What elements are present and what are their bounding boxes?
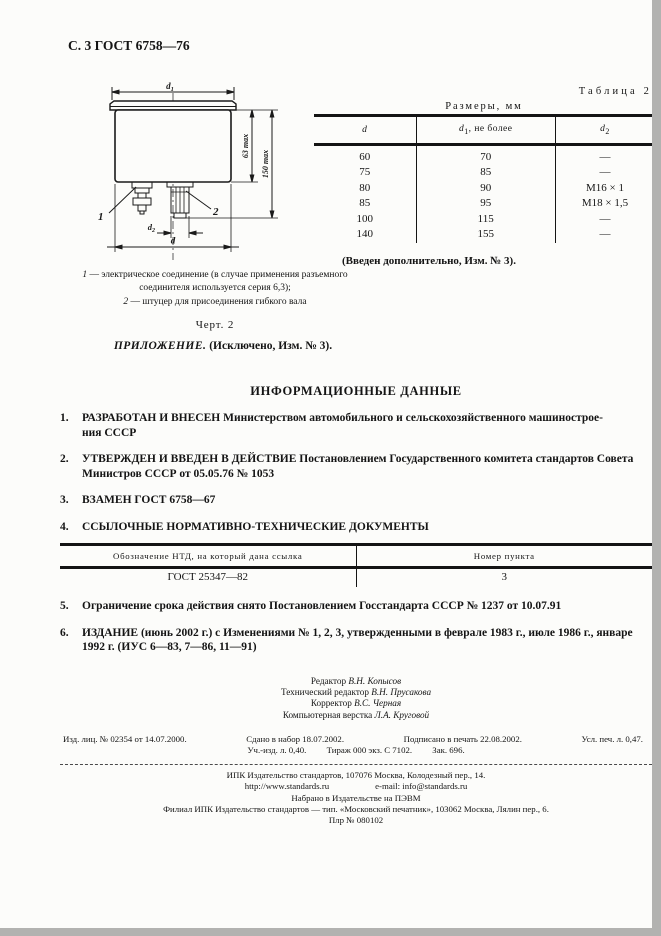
document-page: С. 3 ГОСТ 6758—76 [0, 0, 661, 936]
imprint-line-2: Уч.-изд. л. 0,40. Тираж 000 экз. С 7102.… [60, 745, 652, 755]
col-header-d2: d2 [555, 116, 654, 145]
info-item-6: 6. ИЗДАНИЕ (июнь 2002 г.) с Изменениями … [60, 626, 652, 655]
dim-label-d2: d2 [148, 222, 155, 234]
info-item-1: 1. РАЗРАБОТАН И ВНЕСЕН Министерством авт… [60, 411, 652, 440]
table-row: 100115— [314, 212, 654, 228]
table2-label: Таблица 2 [314, 86, 654, 97]
table-row: 8595М18 × 1,5 [314, 196, 654, 212]
table-row: ГОСТ 25347—82 3 [60, 568, 652, 588]
table2-block: Таблица 2 Размеры, мм d d1, не более d2 … [314, 86, 654, 267]
info-title: ИНФОРМАЦИОННЫЕ ДАННЫЕ [60, 384, 652, 399]
appendix-bold: (Исключено, Изм. № 3). [209, 340, 332, 352]
credit-line: Технический редактор В.Н. Прусакова [60, 687, 652, 698]
dim-label-150max: 150 max [261, 150, 270, 178]
publisher-email: e-mail: info@standards.ru [375, 781, 467, 791]
note2-number: 2 [123, 297, 128, 307]
appendix-italic: ПРИЛОЖЕНИЕ. [114, 340, 206, 352]
license-info: Изд. лиц. № 02354 от 14.07.2000. [63, 734, 187, 744]
credit-line: Редактор В.Н. Копысов [60, 676, 652, 687]
plr-number: Плр № 080102 [60, 815, 652, 826]
table2-note: (Введен дополнительно, Изм. № 3). [314, 255, 654, 267]
dim-label-d1: d1 [166, 81, 174, 93]
publisher-address: ИПК Издательство стандартов, 107076 Моск… [60, 770, 652, 781]
dashed-divider [60, 764, 652, 765]
info-item-2: 2. УТВЕРЖДЕН И ВВЕДЕН В ДЕЙСТВИЕ Постано… [60, 452, 652, 481]
print-sheets: Усл. печ. л. 0,47. [582, 734, 643, 744]
drawing-svg: d1 63 max 150 max d2 d 1 2 [85, 80, 325, 270]
table-row: 6070— [314, 144, 654, 165]
typeset-note: Набрано в Издательстве на ПЭВМ [60, 793, 652, 804]
figure-notes: 1 — электрическое соединение (в случае п… [58, 269, 372, 309]
imprint-line-1: Изд. лиц. № 02354 от 14.07.2000. Сдано в… [63, 734, 643, 744]
note1-number: 1 [82, 270, 87, 280]
col-header-d: d [314, 116, 416, 145]
info-item-3: 3. ВЗАМЕН ГОСТ 6758—67 [60, 493, 652, 508]
order-number: Зак. 696. [432, 745, 464, 755]
col-header-d1: d1, не более [416, 116, 555, 145]
technical-drawing: d1 63 max 150 max d2 d 1 2 [85, 80, 325, 275]
printer-address: Филиал ИПК Издательство стандартов — тип… [60, 804, 652, 815]
dim-label-d: d [171, 236, 176, 246]
pub-sheets: Уч.-изд. л. 0,40. [247, 745, 306, 755]
callout-1: 1 [98, 211, 104, 223]
table-row: 140155— [314, 227, 654, 243]
appendix-line: ПРИЛОЖЕНИЕ. (Исключено, Изм. № 3). [58, 340, 388, 352]
scan-shadow-right [652, 0, 661, 936]
ref-col-header-1: Обозначение НТД, на который дана ссылка [60, 545, 356, 568]
reference-table: Обозначение НТД, на который дана ссылка … [60, 543, 652, 587]
credit-line: Корректор В.С. Черная [60, 698, 652, 709]
publisher-url: http://www.standards.ru [245, 781, 329, 791]
ref-col-header-2: Номер пункта [356, 545, 652, 568]
scan-shadow-bottom [0, 928, 661, 936]
page-header: С. 3 ГОСТ 6758—76 [68, 38, 190, 54]
note2-text: — штуцер для присоединения гибкого вала [131, 297, 307, 307]
note1-text: — электрическое соединение (в случае при… [89, 270, 347, 293]
table-row: 7585— [314, 165, 654, 181]
dimensions-table: d d1, не более d2 6070— 7585— 8090М16 × … [314, 114, 654, 243]
credit-line: Компьютерная верстка Л.А. Круговой [60, 710, 652, 721]
info-section: ИНФОРМАЦИОННЫЕ ДАННЫЕ 1. РАЗРАБОТАН И ВН… [60, 384, 652, 655]
table2-title: Размеры, мм [314, 101, 654, 112]
table-row: 8090М16 × 1 [314, 181, 654, 197]
info-item-4: 4. ССЫЛОЧНЫЕ НОРМАТИВНО-ТЕХНИЧЕСКИЕ ДОКУ… [60, 520, 652, 535]
print-run: Тираж 000 экз. С 7102. [327, 745, 413, 755]
credits-block: Редактор В.Н. Копысов Технический редакт… [60, 676, 652, 721]
dim-label-63max: 63 max [241, 134, 250, 158]
publisher-contacts: http://www.standards.rue-mail: info@stan… [60, 781, 652, 792]
publisher-block: ИПК Издательство стандартов, 107076 Моск… [60, 770, 652, 826]
info-item-5: 5. Ограничение срока действия снято Пост… [60, 599, 652, 614]
typeset-date: Сдано в набор 18.07.2002. [246, 734, 344, 744]
figure-caption: Черт. 2 [58, 319, 372, 331]
callout-2: 2 [212, 206, 219, 218]
print-date: Подписано в печать 22.08.2002. [404, 734, 522, 744]
